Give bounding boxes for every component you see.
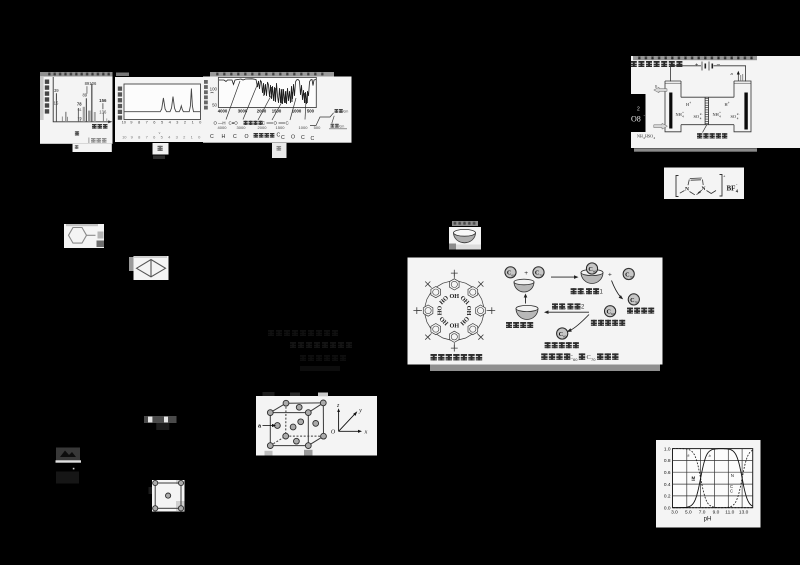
svg-text:500: 500: [314, 125, 321, 130]
svg-text:70: 70: [630, 275, 634, 279]
svg-text:15: 15: [54, 101, 59, 106]
svg-text:2-: 2-: [737, 112, 740, 116]
svg-text:39: 39: [54, 88, 59, 93]
svg-text:b: b: [709, 454, 711, 458]
svg-text:61: 61: [78, 108, 82, 112]
svg-text:/cm: /cm: [339, 124, 345, 128]
svg-text:4000: 4000: [218, 109, 228, 114]
svg-text:OH: OH: [465, 306, 472, 316]
svg-text:NH: NH: [713, 112, 719, 117]
svg-text:70: 70: [635, 300, 639, 304]
svg-text:1500: 1500: [276, 125, 286, 130]
svg-text:y: y: [358, 408, 362, 414]
svg-text:106: 106: [89, 81, 97, 86]
svg-text:N: N: [685, 186, 689, 192]
svg-text:OH: OH: [449, 293, 459, 300]
svg-text:156: 156: [99, 98, 107, 103]
svg-text:a: a: [687, 453, 689, 457]
svg-text:−: −: [717, 62, 721, 69]
svg-text:O8: O8: [631, 115, 641, 124]
svg-text:C: C: [730, 489, 733, 494]
svg-text:C: C: [233, 134, 237, 140]
svg-text:3.0: 3.0: [671, 510, 678, 516]
svg-text:10: 10: [122, 120, 127, 125]
svg-text:9.0: 9.0: [713, 510, 720, 516]
svg-text:C: C: [210, 134, 214, 140]
svg-text:10: 10: [122, 135, 127, 140]
svg-text:M: M: [691, 476, 695, 481]
svg-text:60: 60: [563, 335, 567, 339]
svg-text:+: +: [689, 101, 691, 105]
svg-text:76: 76: [77, 117, 81, 121]
svg-text:70: 70: [591, 357, 596, 362]
svg-text:60: 60: [573, 357, 578, 362]
svg-text:0.6: 0.6: [664, 470, 671, 476]
svg-text:136: 136: [99, 110, 107, 115]
svg-text:1000: 1000: [299, 125, 309, 130]
svg-text:11.0: 11.0: [725, 510, 734, 516]
svg-text:,: ,: [565, 305, 566, 311]
svg-text:+: +: [682, 110, 684, 114]
svg-text:NH: NH: [676, 112, 682, 117]
svg-text:C: C: [277, 133, 281, 139]
svg-text:500: 500: [307, 109, 315, 114]
svg-text:78: 78: [77, 101, 82, 106]
svg-text:,: ,: [584, 289, 585, 295]
svg-text:NH: NH: [637, 134, 643, 139]
svg-text:0.4: 0.4: [664, 482, 671, 488]
svg-text:50: 50: [212, 103, 217, 108]
svg-text:N: N: [702, 186, 706, 192]
svg-text:O: O: [291, 134, 295, 140]
svg-text:SO: SO: [731, 114, 737, 119]
svg-text:0.2: 0.2: [664, 494, 671, 500]
svg-text:v: v: [159, 131, 161, 135]
svg-text:0.8: 0.8: [664, 458, 671, 464]
svg-text:HSO: HSO: [645, 134, 653, 139]
svg-text:HO: HO: [449, 321, 459, 328]
svg-text:0.0: 0.0: [664, 506, 671, 512]
svg-text:5.0: 5.0: [685, 510, 692, 516]
svg-text:pH: pH: [704, 517, 712, 523]
svg-text:+: +: [608, 272, 612, 279]
svg-text:3000: 3000: [237, 125, 247, 130]
svg-text:C: C: [281, 135, 285, 141]
svg-text:N: N: [731, 473, 734, 478]
svg-text:60: 60: [611, 312, 615, 316]
svg-text:C: C: [301, 135, 305, 141]
svg-text:H: H: [222, 134, 226, 140]
svg-text:SO: SO: [694, 114, 700, 119]
svg-text:O: O: [331, 430, 336, 436]
svg-text:1.0: 1.0: [664, 446, 671, 452]
svg-text:13.0: 13.0: [739, 510, 749, 516]
svg-text:4000: 4000: [218, 125, 228, 130]
svg-text:60: 60: [511, 273, 515, 277]
svg-text:2000: 2000: [258, 125, 268, 130]
svg-text:HO: HO: [437, 306, 444, 316]
svg-text:C: C: [286, 121, 289, 126]
svg-text:+: +: [524, 270, 528, 277]
svg-text:x: x: [364, 429, 368, 435]
svg-text:100: 100: [210, 87, 218, 92]
svg-text:/cm: /cm: [343, 110, 349, 114]
svg-text:70: 70: [539, 273, 543, 277]
svg-text:60: 60: [593, 270, 597, 274]
svg-text:+: +: [719, 110, 721, 114]
svg-text:2: 2: [637, 107, 640, 113]
svg-text:BF: BF: [727, 185, 736, 193]
svg-text:O: O: [245, 134, 249, 140]
svg-text:2-: 2-: [700, 112, 703, 116]
svg-text:+: +: [728, 101, 730, 105]
svg-text:C: C: [311, 136, 315, 142]
svg-text:7.0: 7.0: [699, 510, 706, 516]
